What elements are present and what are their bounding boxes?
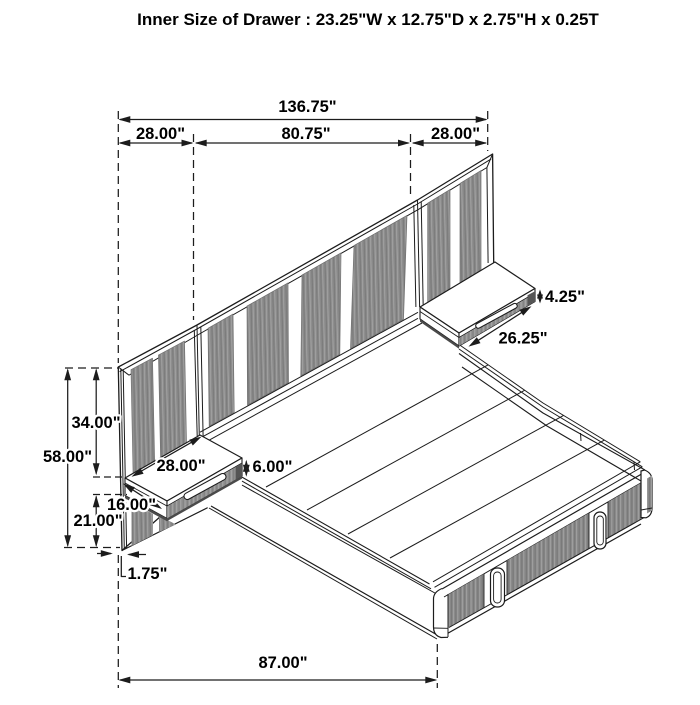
svg-text:4.25": 4.25" [545,288,585,306]
svg-text:80.75": 80.75" [281,125,330,143]
svg-text:6.00": 6.00" [253,458,293,476]
svg-text:87.00": 87.00" [258,654,307,672]
svg-text:26.25": 26.25" [498,330,547,348]
svg-text:16.00": 16.00" [107,496,156,514]
svg-text:136.75": 136.75" [278,98,336,116]
svg-text:21.00": 21.00" [73,512,122,530]
svg-text:1.75": 1.75" [128,565,168,583]
svg-text:Inner Size of Drawer : 23.25"W: Inner Size of Drawer : 23.25"W x 12.75"D… [137,10,599,29]
svg-text:34.00": 34.00" [71,414,120,432]
svg-text:58.00": 58.00" [43,448,92,466]
svg-text:28.00": 28.00" [156,457,205,475]
svg-text:28.00": 28.00" [431,125,480,143]
svg-text:28.00": 28.00" [136,125,185,143]
